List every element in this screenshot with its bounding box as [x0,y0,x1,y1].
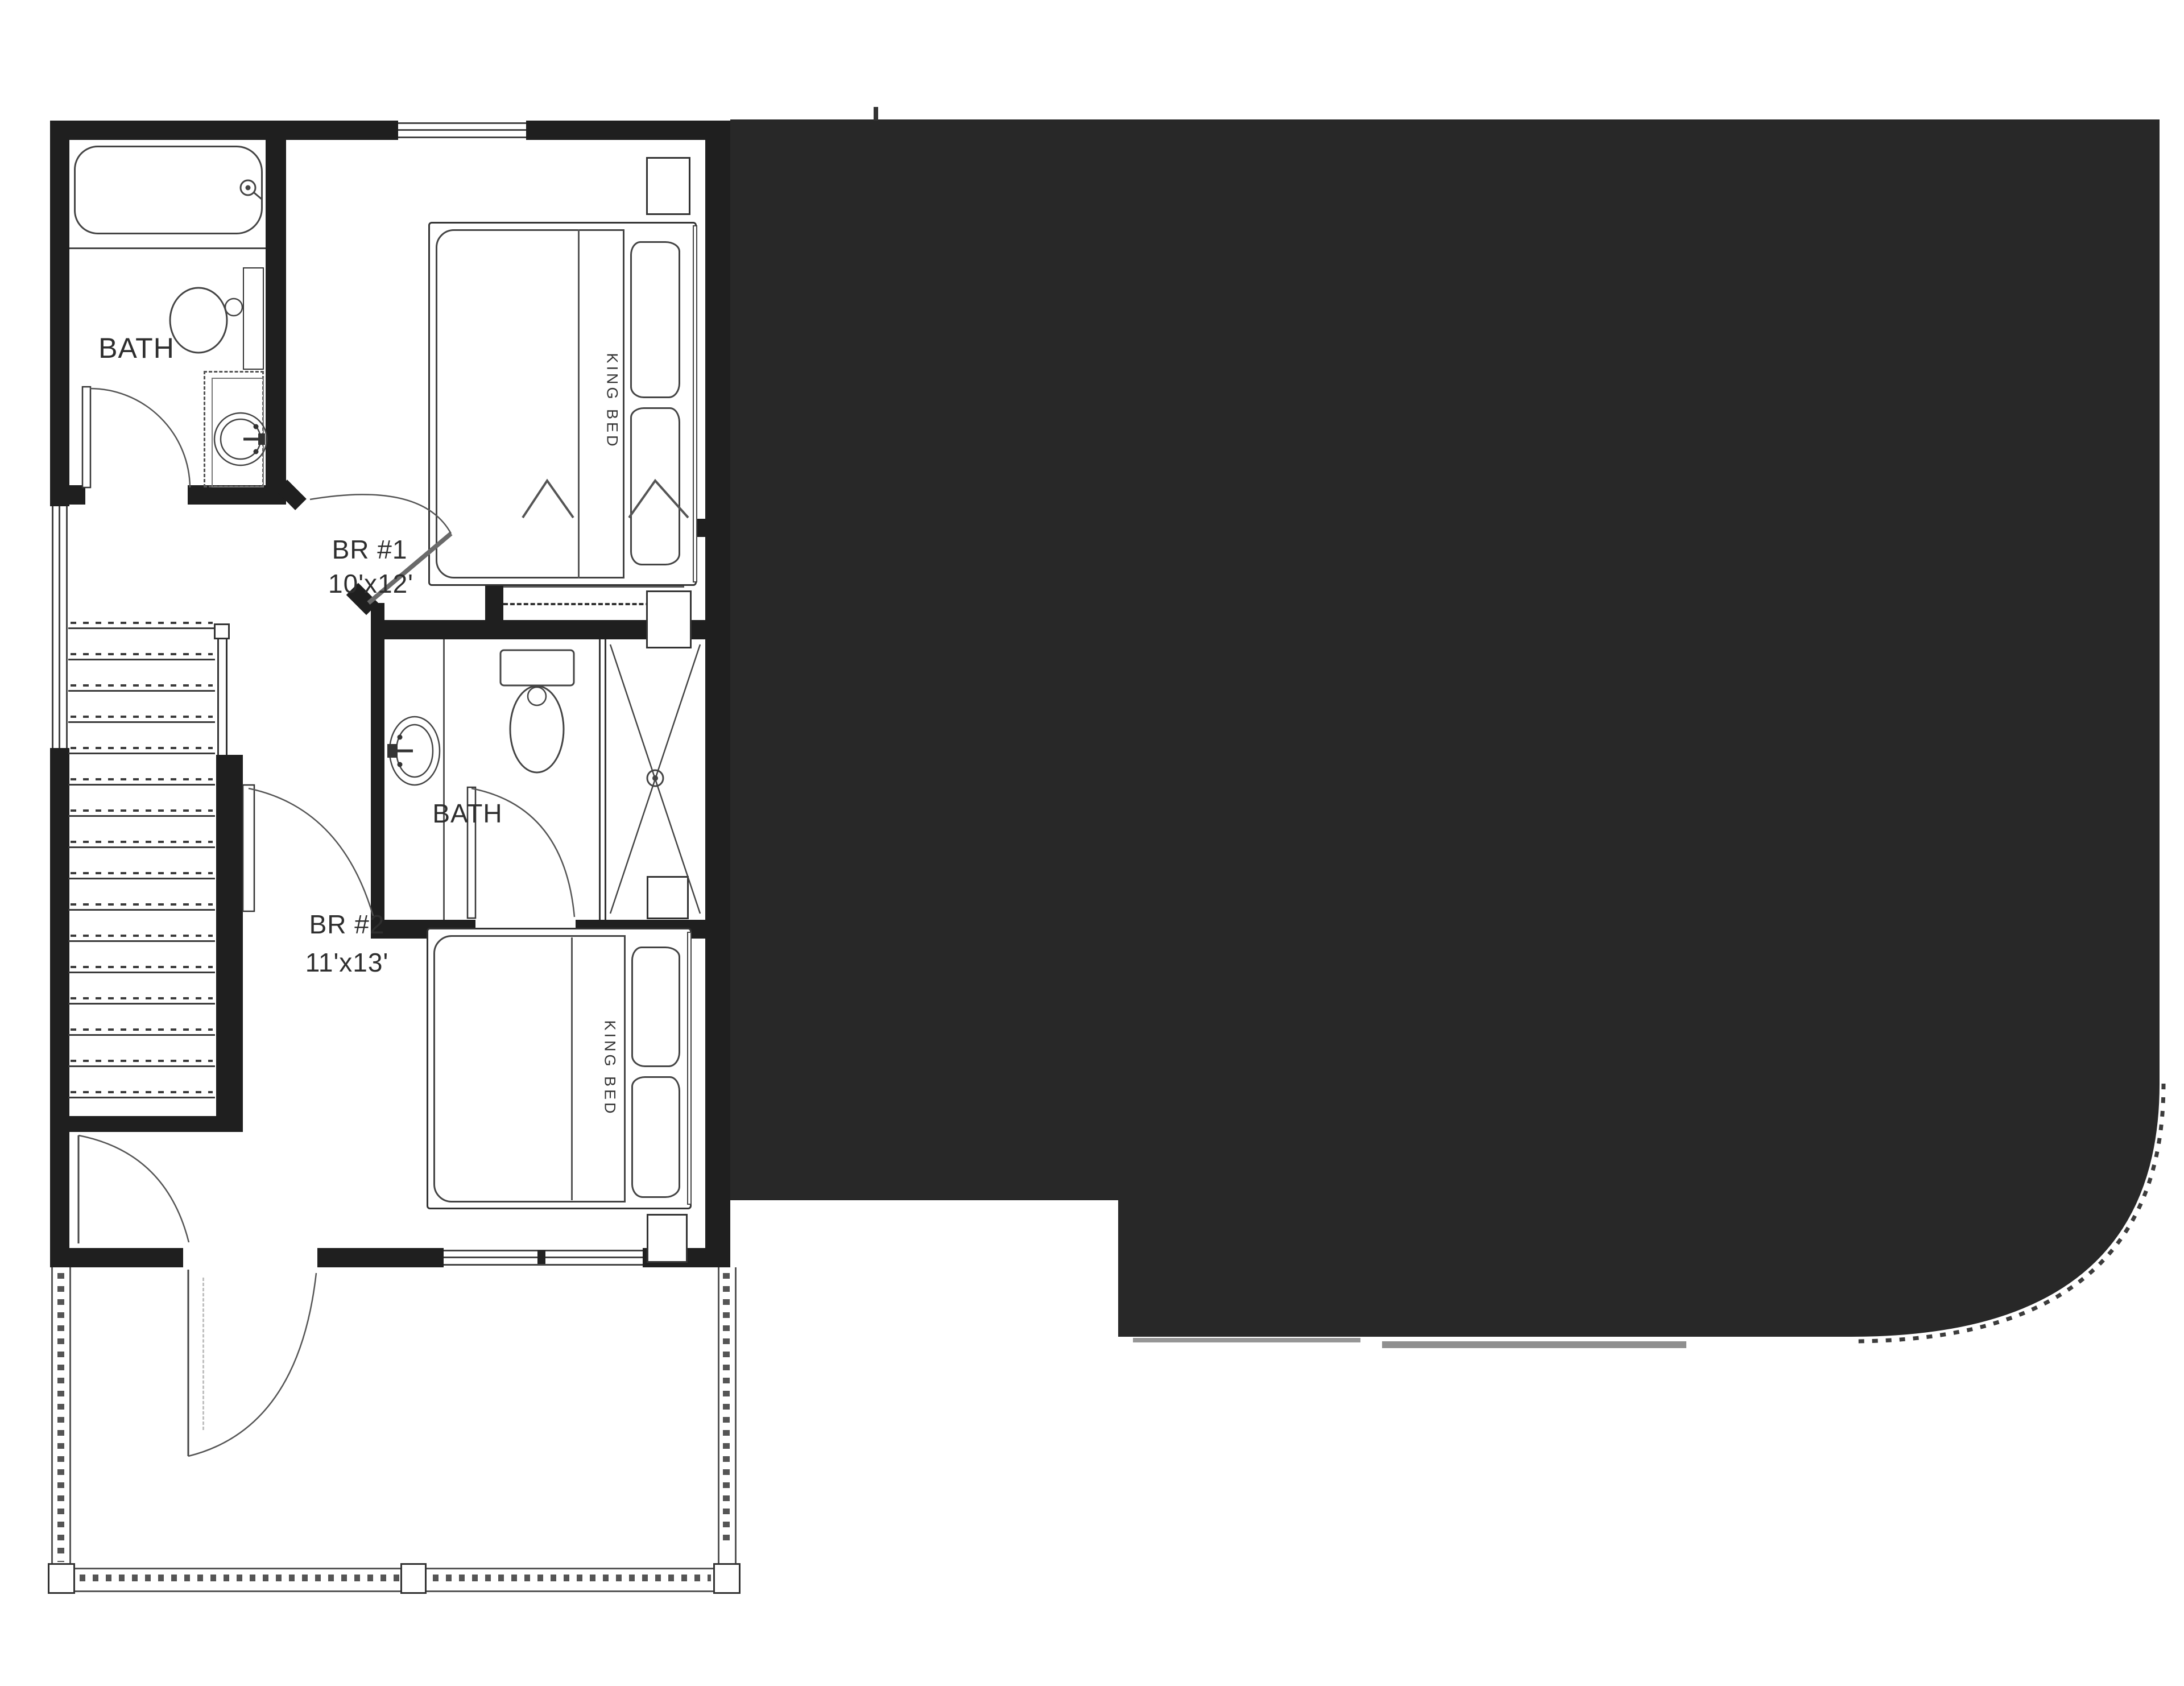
window-top-line [398,129,526,131]
stair-tread [68,1034,215,1036]
window-bottom-mullion [537,1250,545,1264]
bath1-tub-wall-line [69,247,266,249]
window-top-line [398,122,526,124]
bed-br2-fold-line [571,937,573,1200]
stair-tread-nosing [71,809,213,812]
bed-br1-pillow [630,241,680,398]
window-left-line [59,506,60,748]
door-opening-deck [183,1248,317,1267]
redacted-region-curve-hatch [1851,1084,2164,1341]
redacted-region [730,119,2160,1337]
stair-tread [68,690,215,692]
linework-layer [0,0,2184,1686]
sink-bath2-spout [387,744,398,758]
bed-br1-fold-line [578,229,580,578]
stair-tread-nosing [71,841,213,843]
stair-tread [68,878,215,879]
deck-rail-left-outer [51,1267,53,1592]
room-label-br1-size: 10'x12' [328,568,413,599]
window-bottom [444,1248,643,1267]
wall-top [50,121,730,140]
redacted-region-layer [0,0,2184,1686]
stair-tread [68,909,215,911]
survey-tick [874,107,878,121]
window-bottom-line [444,1264,643,1266]
shower-divider-wall [599,639,606,920]
deck-rail-bottom-outer [51,1590,738,1592]
bed-br1-pillow [630,407,680,565]
shower-drain-dot [652,775,658,781]
stair-tread-nosing [71,1091,213,1093]
bed-label-br2: KING BED [601,1020,619,1116]
window-top [398,121,526,140]
wall-bath2-left [371,603,384,939]
window-top-line [398,137,526,138]
stair-tread-nosing [71,872,213,874]
deck-rail-bottom-inner [51,1568,738,1569]
stair-tread-nosing [71,997,213,999]
wall-right [705,121,730,1267]
deck-rail-right-outer [735,1267,737,1568]
stair-tread-nosing [71,1028,213,1031]
sink-bath2-handle [398,762,403,767]
door-swing-br2 [249,788,373,916]
deck-rail-right-inner [718,1267,719,1568]
stair-newel-post [214,623,230,639]
stair-tread-nosing [71,684,213,687]
stair-tread [68,1065,215,1067]
shower-drain-icon [647,770,663,786]
deck-post-right [713,1563,741,1594]
bath2-counter-line [443,639,445,920]
deck-post-middle [400,1563,427,1594]
stair-tread-nosing [71,903,213,906]
stair-tread [68,1003,215,1005]
stair-rail-line [226,627,227,755]
stair-tread-nosing [71,716,213,718]
toilet-flush-bath2 [528,687,546,705]
closet-shelf-line [503,586,684,588]
stair-tread [68,753,215,754]
door-swing-landing [78,1135,189,1242]
bed-br2-blanket [433,935,626,1202]
shower-x-line [610,644,700,914]
shower-x-line [610,644,700,914]
stair-tread [68,721,215,723]
stair-rail-line [217,627,219,755]
door-swing-bath1 [90,389,190,487]
wall-stair-bottom [63,1116,243,1132]
stair-tread [68,846,215,848]
sink-bath2-inner [396,725,433,777]
room-label-br1-name: BR #1 [332,534,408,565]
toilet-tank-bath2 [500,650,574,685]
stair-tread [68,972,215,973]
wall-bath1-divider [266,140,286,505]
nightstand [647,1214,688,1263]
stair-tread-nosing [71,747,213,749]
stair-tread [68,815,215,817]
toilet-tank-bath1 [225,299,242,316]
stair-tread [68,627,215,629]
bath1-vanity-inner [212,378,264,487]
hidden-wall-line-left [1133,1338,1360,1342]
door-leaf-br2 [243,785,254,911]
sink-bath2-outer [390,717,440,785]
stair-tread [68,784,215,786]
window-left-line [52,506,53,748]
window-left-jamb-top [50,497,69,506]
nightstand [647,876,689,919]
room-label-bath2: BATH [432,798,502,829]
wall-bath1-bottom-right [188,485,286,505]
stair-tread-nosing [71,653,213,655]
deck-rail-right-balusters [723,1273,730,1540]
window-left-line [66,506,68,748]
floor-plan-canvas: BATH BR #1 10'x12' BATH BR #2 11'x13' KI… [0,0,2184,1686]
window-left-jamb-bottom [50,748,69,757]
bathtub [74,146,263,234]
room-label-bath1: BATH [98,332,175,365]
toilet-bowl-bath1 [170,288,227,353]
deck-rail-left-inner [69,1267,71,1592]
deck-post-left [48,1563,75,1594]
toilet-bowl-bath2 [510,686,564,772]
deck-door-ghost-line [202,1278,204,1430]
door-leaf-bath1 [82,387,90,487]
stair-tread [68,1097,215,1098]
nightstand [646,157,690,215]
bed-br1-blanket [436,229,624,578]
bath1-vanity-counter [243,267,264,370]
wall-stair-right [216,755,243,1116]
sink-bath2-handle [398,735,403,740]
bed-label-br1: KING BED [603,353,621,449]
door-swing-deck [188,1273,316,1456]
deck-rail-left-balusters [57,1273,64,1562]
stair-tread [68,659,215,660]
stair-tread-nosing [71,966,213,968]
bed-br2-headboard [687,932,692,1205]
room-label-br2-size: 11'x13' [305,947,388,978]
nightstand [646,590,692,648]
room-label-br2-name: BR #2 [309,909,385,940]
hidden-wall-line-right [1382,1341,1686,1348]
bed-br2-pillow [631,947,680,1067]
stair-tread-nosing [71,622,213,624]
bed-br1-headboard [693,225,697,582]
bed-br2-pillow [631,1076,680,1198]
stair-tread-nosing [71,778,213,780]
window-left [50,506,69,748]
deck-rail-bottom-balusters [80,1575,711,1581]
stair-tread-nosing [71,1060,213,1062]
stair-tread [68,940,215,942]
stair-tread-nosing [71,935,213,937]
